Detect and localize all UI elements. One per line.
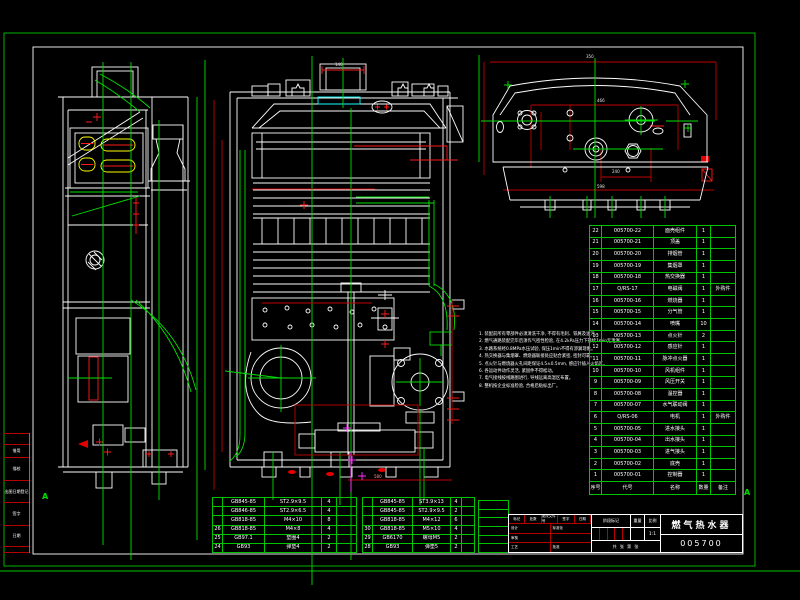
roles-column-2: 标准化 批准	[551, 524, 592, 552]
stage-mark-cells	[592, 528, 631, 540]
cell-qty: 8	[322, 516, 337, 524]
bom-cell-qty: 1	[697, 226, 711, 237]
bom-cell-code: 005700-10	[602, 366, 654, 377]
cell-name: ST3.9×13	[413, 498, 451, 506]
margin-row-label: 借用	[4, 444, 29, 457]
dim-label-front-flue: 140	[335, 62, 343, 67]
bom-cell-code: 005700-09	[602, 377, 654, 388]
bom-cell-no: 18	[590, 273, 602, 284]
bom-cell-note	[711, 249, 735, 260]
bom-cell-qty: 1	[697, 238, 711, 249]
cell-note	[337, 526, 356, 534]
cell-name: 垫圈4	[265, 535, 322, 543]
cell-qty: 2	[322, 544, 337, 552]
table-row: 8 005700-08 温控器 1	[590, 389, 735, 401]
rev-header-cell: 标记	[509, 515, 525, 523]
bom-cell-qty: 1	[697, 401, 711, 412]
table-row: 2 005700-02 底壳 1	[590, 459, 735, 471]
cell-name: M4×8	[265, 526, 322, 534]
cell-note	[337, 535, 356, 543]
bom-cell-no: 16	[590, 296, 602, 307]
revision-header-row: 标记 处数 更改文件号 签字 日期	[509, 515, 591, 524]
cell-qty: 4	[451, 498, 462, 506]
bom-cell-no: 11	[590, 354, 602, 365]
cell-code: GB93	[373, 544, 413, 552]
bom-cell-code: 005700-19	[602, 261, 654, 272]
bom-cell-no: 8	[590, 389, 602, 400]
top-view-drawing	[481, 58, 716, 218]
margin-row-blank	[4, 546, 29, 553]
bom-cell-no: 3	[590, 447, 602, 458]
bom-cell-note	[711, 377, 735, 388]
bom-cell-name: 进气接头	[654, 447, 697, 458]
bom-cell-qty: 1	[697, 377, 711, 388]
fastener-table-right: GB845-85 ST3.9×13 4 GB845-85 ST2.9×9.5 2…	[362, 497, 475, 553]
table-row: 26 GB818-85 M4×8 4	[213, 526, 356, 535]
bom-cell-note	[711, 366, 735, 377]
bom-cell-code: 005700-08	[602, 389, 654, 400]
cell-no: 25	[213, 535, 223, 543]
bom-cell-no: 10	[590, 366, 602, 377]
cell-no: 26	[213, 526, 223, 534]
cell-name: 弹垫5	[413, 544, 451, 552]
bom-cell-qty: 10	[697, 319, 711, 330]
table-row: 24 GB93 弹垫4 2	[213, 544, 356, 552]
table-row: 30 GB818-85 M5×10 4	[363, 526, 474, 535]
bom-cell-no: 15	[590, 307, 602, 318]
bom-cell-name: 感应针	[654, 342, 697, 353]
cell-code: GB818-85	[373, 516, 413, 524]
bom-cell-qty: 1	[697, 412, 711, 423]
table-row: 21 005700-21 顶盖 1	[590, 238, 735, 250]
cell-qty: 2	[451, 544, 462, 552]
bom-cell-code: Q/RS-06	[602, 412, 654, 423]
bom-cell-name: 分气管	[654, 307, 697, 318]
bom-cell-name: 顶盖	[654, 238, 697, 249]
bom-cell-note	[711, 470, 735, 481]
cell-note	[337, 516, 356, 524]
table-row: GB845-85 ST2.9×9.5 2	[363, 507, 474, 516]
bom-cell-name: 喷嘴	[654, 319, 697, 330]
margin-strip: 借用 描校 出图日期登记 签字 日期	[4, 433, 30, 553]
bom-cell-no: 14	[590, 319, 602, 330]
bom-cell-name: 集烟罩	[654, 261, 697, 272]
cell-no	[363, 507, 373, 515]
header-code: 代号	[602, 482, 654, 494]
zone-marker-left: A	[42, 492, 48, 501]
bom-cell-no: 5	[590, 424, 602, 435]
cell-code: GB845-85	[373, 507, 413, 515]
table-row: 3 005700-03 进气接头 1	[590, 447, 735, 459]
cell-no: 28	[363, 544, 373, 552]
bom-cell-qty: 1	[697, 273, 711, 284]
weight-value	[631, 528, 645, 540]
cell-qty: 2	[322, 535, 337, 543]
dim-label-top-width: 350	[586, 54, 594, 59]
title-block-identity: 燃气热水器 005700	[661, 515, 742, 552]
bom-cell-code: 005700-01	[602, 470, 654, 481]
bom-cell-qty: 2	[697, 331, 711, 342]
bom-cell-qty: 1	[697, 366, 711, 377]
table-row: 22 005700-22 面壳组件 1	[590, 226, 735, 238]
bom-cell-note	[711, 296, 735, 307]
cell-qty: 4	[322, 526, 337, 534]
bom-cell-qty: 1	[697, 470, 711, 481]
cell-name: M5×10	[413, 526, 451, 534]
bom-cell-no: 1	[590, 470, 602, 481]
bom-cell-qty: 1	[697, 296, 711, 307]
bom-cell-name: 面壳组件	[654, 226, 697, 237]
bom-cell-code: 005700-18	[602, 273, 654, 284]
title-block: 标记 处数 更改文件号 签字 日期 设计 审核 工艺 标准化 批准 阶段标记 重…	[508, 514, 743, 553]
table-row: 29 GB6170 螺母M5 2	[363, 535, 474, 544]
bom-cell-code: 005700-02	[602, 459, 654, 470]
header-qty: 数量	[697, 482, 711, 494]
scale-label: 比例	[645, 515, 660, 527]
bom-cell-no: 13	[590, 331, 602, 342]
bom-cell-qty: 1	[697, 424, 711, 435]
bom-cell-note	[711, 273, 735, 284]
bom-cell-qty: 1	[697, 354, 711, 365]
bom-cell-qty: 1	[697, 284, 711, 295]
cell-code: GB845-85	[223, 498, 265, 506]
bom-cell-note	[711, 424, 735, 435]
bom-cell-note	[711, 238, 735, 249]
dim-label-top-mid: 240	[612, 169, 620, 174]
rev-header-cell: 签字	[558, 515, 574, 523]
bom-cell-name: 热交换器	[654, 273, 697, 284]
bom-cell-code: 005700-22	[602, 226, 654, 237]
bom-cell-code: 005700-05	[602, 424, 654, 435]
cell-qty: 2	[451, 507, 462, 515]
bom-cell-qty: 1	[697, 389, 711, 400]
cell-qty: 6	[451, 516, 462, 524]
bom-cell-code: 005700-07	[602, 401, 654, 412]
cell-name: ST2.9×6.5	[265, 507, 322, 515]
stage-label: 阶段标记	[592, 515, 631, 527]
bom-cell-no: 6	[590, 412, 602, 423]
table-row: GB845-85 ST3.9×13 4	[363, 498, 474, 507]
revision-grid	[478, 500, 509, 553]
bom-cell-qty: 1	[697, 249, 711, 260]
bom-cell-name: 电机	[654, 412, 697, 423]
cell-no	[213, 516, 223, 524]
title-block-stage: 阶段标记 重量 比例 1:1 共 张 第 张	[592, 515, 661, 552]
bom-cell-no: 7	[590, 401, 602, 412]
table-row: 17 Q/RS-17 电磁阀 1 外购件	[590, 284, 735, 296]
bom-cell-qty: 1	[697, 447, 711, 458]
bom-cell-name: 点火针	[654, 331, 697, 342]
cell-note	[337, 544, 356, 552]
cell-note	[337, 507, 356, 515]
cell-no	[213, 507, 223, 515]
cell-note	[337, 498, 356, 506]
bom-cell-code: 005700-16	[602, 296, 654, 307]
cell-code: GB6170	[373, 535, 413, 543]
margin-row-label: 出图日期登记	[4, 480, 29, 502]
cell-note	[462, 544, 474, 552]
bom-cell-code: 005700-12	[602, 342, 654, 353]
table-row: 15 005700-15 分气管 1	[590, 307, 735, 319]
bom-cell-no: 4	[590, 436, 602, 447]
table-row: 13 005700-13 点火针 2	[590, 331, 735, 343]
bom-cell-no: 19	[590, 261, 602, 272]
margin-row-label: 签字	[4, 502, 29, 525]
bom-cell-code: 005700-20	[602, 249, 654, 260]
cell-note	[462, 498, 474, 506]
cad-drawing-viewport: 借用 描校 出图日期登记 签字 日期 1. 装配前所有零部件必须清洗干净, 不得…	[0, 0, 800, 600]
cell-no: 30	[363, 526, 373, 534]
role-label: 设计	[509, 524, 550, 534]
bom-cell-code: 005700-03	[602, 447, 654, 458]
bom-cell-no: 9	[590, 377, 602, 388]
bom-cell-note	[711, 401, 735, 412]
cell-name: 弹垫4	[265, 544, 322, 552]
margin-row-label: 日期	[4, 525, 29, 546]
table-row: 11 005700-11 脉冲点火器 1	[590, 354, 735, 366]
table-row: 12 005700-12 感应针 1	[590, 342, 735, 354]
bom-cell-note	[711, 226, 735, 237]
bom-cell-qty: 1	[697, 342, 711, 353]
rev-header-cell: 日期	[575, 515, 591, 523]
bom-cell-name: 控制器	[654, 470, 697, 481]
cell-no	[213, 498, 223, 506]
cell-code: GB97.1	[223, 535, 265, 543]
bom-cell-no: 22	[590, 226, 602, 237]
bom-cell-name: 进水接头	[654, 424, 697, 435]
rev-header-cell: 处数	[525, 515, 541, 523]
cell-no: 24	[213, 544, 223, 552]
table-row: 20 005700-20 排烟管 1	[590, 249, 735, 261]
bom-cell-note	[711, 459, 735, 470]
bom-cell-name: 出水接头	[654, 436, 697, 447]
cell-no: 29	[363, 535, 373, 543]
table-row: 28 GB93 弹垫5 2	[363, 544, 474, 552]
cell-code: GB818-85	[373, 526, 413, 534]
bom-cell-name: 风压开关	[654, 377, 697, 388]
bom-cell-name: 温控器	[654, 389, 697, 400]
title-block-revisions: 标记 处数 更改文件号 签字 日期 设计 审核 工艺 标准化 批准	[509, 515, 592, 552]
table-row: GB845-85 ST2.9×9.5 4	[213, 498, 356, 507]
weight-label: 重量	[631, 515, 645, 527]
side-view-drawing	[58, 60, 205, 560]
bom-cell-name: 风机组件	[654, 366, 697, 377]
role-label: 标准化	[551, 524, 592, 534]
table-row: 5 005700-05 进水接头 1	[590, 424, 735, 436]
bom-cell-note	[711, 261, 735, 272]
role-label: 批准	[551, 543, 592, 552]
dim-label-top-inner: 466	[597, 98, 605, 103]
table-row: 14 005700-14 喷嘴 10	[590, 319, 735, 331]
table-row: 6 Q/RS-06 电机 1 外购件	[590, 412, 735, 424]
bom-cell-qty: 1	[697, 459, 711, 470]
table-row: 16 005700-16 燃烧器 1	[590, 296, 735, 308]
cell-note	[462, 535, 474, 543]
header-no: 序号	[590, 482, 602, 494]
cell-qty: 4	[451, 526, 462, 534]
bom-cell-name: 脉冲点火器	[654, 354, 697, 365]
cell-name: M4×10	[265, 516, 322, 524]
bom-cell-code: Q/RS-17	[602, 284, 654, 295]
role-label	[551, 534, 592, 544]
table-row: GB818-85 M4×10 8	[213, 516, 356, 525]
parts-list-header: 序号 代号 名称 数量 备注	[590, 481, 735, 494]
scale-value: 1:1	[645, 528, 660, 540]
bom-cell-qty: 1	[697, 261, 711, 272]
table-row: 10 005700-10 风机组件 1	[590, 366, 735, 378]
cell-name: ST2.9×9.5	[413, 507, 451, 515]
cell-code: GB93	[223, 544, 265, 552]
bom-cell-code: 005700-15	[602, 307, 654, 318]
bom-cell-note	[711, 436, 735, 447]
cell-qty: 4	[322, 498, 337, 506]
bom-cell-name: 电磁阀	[654, 284, 697, 295]
bom-cell-note	[711, 389, 735, 400]
parts-list-table: 22 005700-22 面壳组件 1 21 005700-21 顶盖 1 20…	[589, 225, 736, 495]
header-name: 名称	[654, 482, 697, 494]
bom-cell-note	[711, 307, 735, 318]
header-note: 备注	[711, 482, 735, 494]
bom-cell-note	[711, 447, 735, 458]
bom-cell-code: 005700-13	[602, 331, 654, 342]
cell-name: 螺母M5	[413, 535, 451, 543]
zone-marker-right: A	[744, 488, 750, 497]
drawing-title: 燃气热水器	[661, 515, 742, 535]
cell-note	[462, 507, 474, 515]
bom-cell-code: 005700-21	[602, 238, 654, 249]
table-row: 9 005700-09 风压开关 1	[590, 377, 735, 389]
dim-label-top-total: 598	[597, 184, 605, 189]
bom-cell-note	[711, 331, 735, 342]
cell-note	[462, 516, 474, 524]
role-label: 工艺	[509, 543, 550, 552]
table-row: 1 005700-01 控制器 1	[590, 470, 735, 481]
bom-cell-name: 水气联动阀	[654, 401, 697, 412]
cell-code: GB845-85	[373, 498, 413, 506]
margin-row-label: 描校	[4, 457, 29, 480]
cell-no	[363, 498, 373, 506]
cell-no	[363, 516, 373, 524]
bom-cell-note: 外购件	[711, 284, 735, 295]
bom-cell-name: 底壳	[654, 459, 697, 470]
cell-code: GB818-85	[223, 516, 265, 524]
fastener-table-left: GB845-85 ST2.9×9.5 4 GB846-85 ST2.9×6.5 …	[212, 497, 357, 553]
cell-note	[462, 526, 474, 534]
bom-cell-note: 外购件	[711, 412, 735, 423]
bom-cell-no: 20	[590, 249, 602, 260]
table-row: 4 005700-04 出水接头 1	[590, 436, 735, 448]
bom-cell-note	[711, 342, 735, 353]
roles-column-1: 设计 审核 工艺	[509, 524, 551, 552]
bom-cell-qty: 1	[697, 436, 711, 447]
bom-cell-name: 排烟管	[654, 249, 697, 260]
table-row: GB818-85 M4×12 6	[363, 516, 474, 525]
table-row: 18 005700-18 热交换器 1	[590, 273, 735, 285]
bom-cell-no: 17	[590, 284, 602, 295]
dim-label-front-bottom: 580	[374, 474, 382, 479]
bom-cell-code: 005700-11	[602, 354, 654, 365]
role-label: 审核	[509, 534, 550, 544]
bom-cell-no: 2	[590, 459, 602, 470]
bom-cell-qty: 1	[697, 307, 711, 318]
table-row: GB846-85 ST2.9×6.5 4	[213, 507, 356, 516]
cell-qty: 4	[322, 507, 337, 515]
bom-cell-no: 12	[590, 342, 602, 353]
cell-name: ST2.9×9.5	[265, 498, 322, 506]
bom-cell-note	[711, 319, 735, 330]
bom-cell-no: 21	[590, 238, 602, 249]
drawing-number: 005700	[661, 535, 742, 552]
bom-cell-name: 燃烧器	[654, 296, 697, 307]
parts-list-rows: 22 005700-22 面壳组件 1 21 005700-21 顶盖 1 20…	[590, 226, 735, 481]
cell-name: M4×12	[413, 516, 451, 524]
cell-code: GB846-85	[223, 507, 265, 515]
bom-cell-code: 005700-14	[602, 319, 654, 330]
rev-header-cell: 更改文件号	[542, 515, 558, 523]
cell-code: GB818-85	[223, 526, 265, 534]
table-row: 19 005700-19 集烟罩 1	[590, 261, 735, 273]
margin-row-blank	[4, 433, 29, 444]
clamp-highlights	[333, 122, 438, 147]
bom-cell-note	[711, 354, 735, 365]
table-row: 25 GB97.1 垫圈4 2	[213, 535, 356, 544]
table-row: 7 005700-07 水气联动阀 1	[590, 401, 735, 413]
sheet-info: 共 张 第 张	[592, 541, 660, 552]
bom-cell-code: 005700-04	[602, 436, 654, 447]
cell-qty: 2	[451, 535, 462, 543]
